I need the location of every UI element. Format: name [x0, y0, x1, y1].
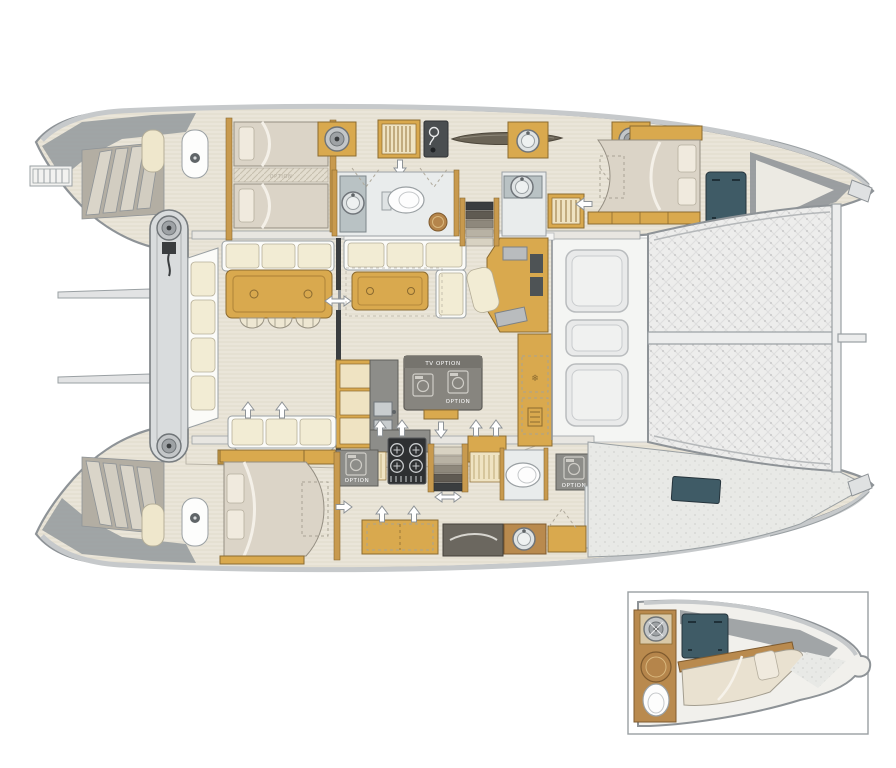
starboard-head [500, 448, 548, 500]
inset-teal-locker [682, 614, 728, 658]
snowflake-icon: ❄ [531, 374, 539, 384]
stairs-starboard [428, 444, 468, 492]
head-option-locker: OPTION [556, 454, 592, 490]
sink [342, 192, 364, 214]
catamaran-floor-plan: ❄ TV OPTION OPTION [0, 0, 896, 768]
cabin-top-winch-port [318, 122, 356, 156]
stove [388, 438, 426, 484]
center-beam [648, 332, 838, 344]
davit-beam [58, 210, 188, 462]
galley-option-label: OPTION [345, 478, 370, 484]
infill-option-label: OPTION [270, 174, 293, 180]
aft-winch-port [157, 216, 181, 240]
mainsheet-block [162, 242, 176, 254]
foredeck-hatches [566, 250, 628, 426]
bowsprit-tip [838, 334, 866, 342]
floor-plan-canvas: ❄ TV OPTION OPTION [0, 0, 896, 768]
galley-island: TV OPTION OPTION [404, 356, 482, 419]
cockpit-table [226, 270, 332, 318]
teak-shower-grate [429, 213, 447, 231]
galley-option-locker: OPTION [336, 450, 378, 486]
deck-hatch-teal [671, 476, 721, 503]
stairs-port [460, 198, 499, 246]
starboard-sofa [228, 416, 336, 448]
island-option-label: OPTION [446, 399, 471, 405]
starboard-chest [362, 520, 438, 554]
tv-option-label: TV OPTION [424, 361, 460, 367]
salon-coffee-table [352, 272, 428, 310]
sink [517, 130, 539, 152]
cockpit-side-bench [188, 248, 218, 428]
sink [511, 176, 533, 198]
cockpit-aft-bench [222, 241, 334, 271]
aft-winch-starboard [157, 434, 181, 458]
twin-bed [234, 122, 328, 166]
inset-wet-head [634, 610, 676, 722]
vanity-starboard [504, 524, 586, 554]
toilet [643, 684, 669, 716]
bow-cabin-inset [628, 592, 870, 734]
swim-ladder [30, 166, 72, 186]
twin-bed [234, 184, 328, 228]
fridge-cabinet: ❄ [518, 334, 552, 446]
sink [513, 528, 535, 550]
wet-locker [424, 121, 448, 157]
hanging-locker [378, 120, 420, 158]
toilet [506, 463, 540, 487]
cabin-top-winch-mid [508, 122, 548, 158]
head-option-label: OPTION [562, 483, 587, 489]
port-head [332, 170, 459, 236]
